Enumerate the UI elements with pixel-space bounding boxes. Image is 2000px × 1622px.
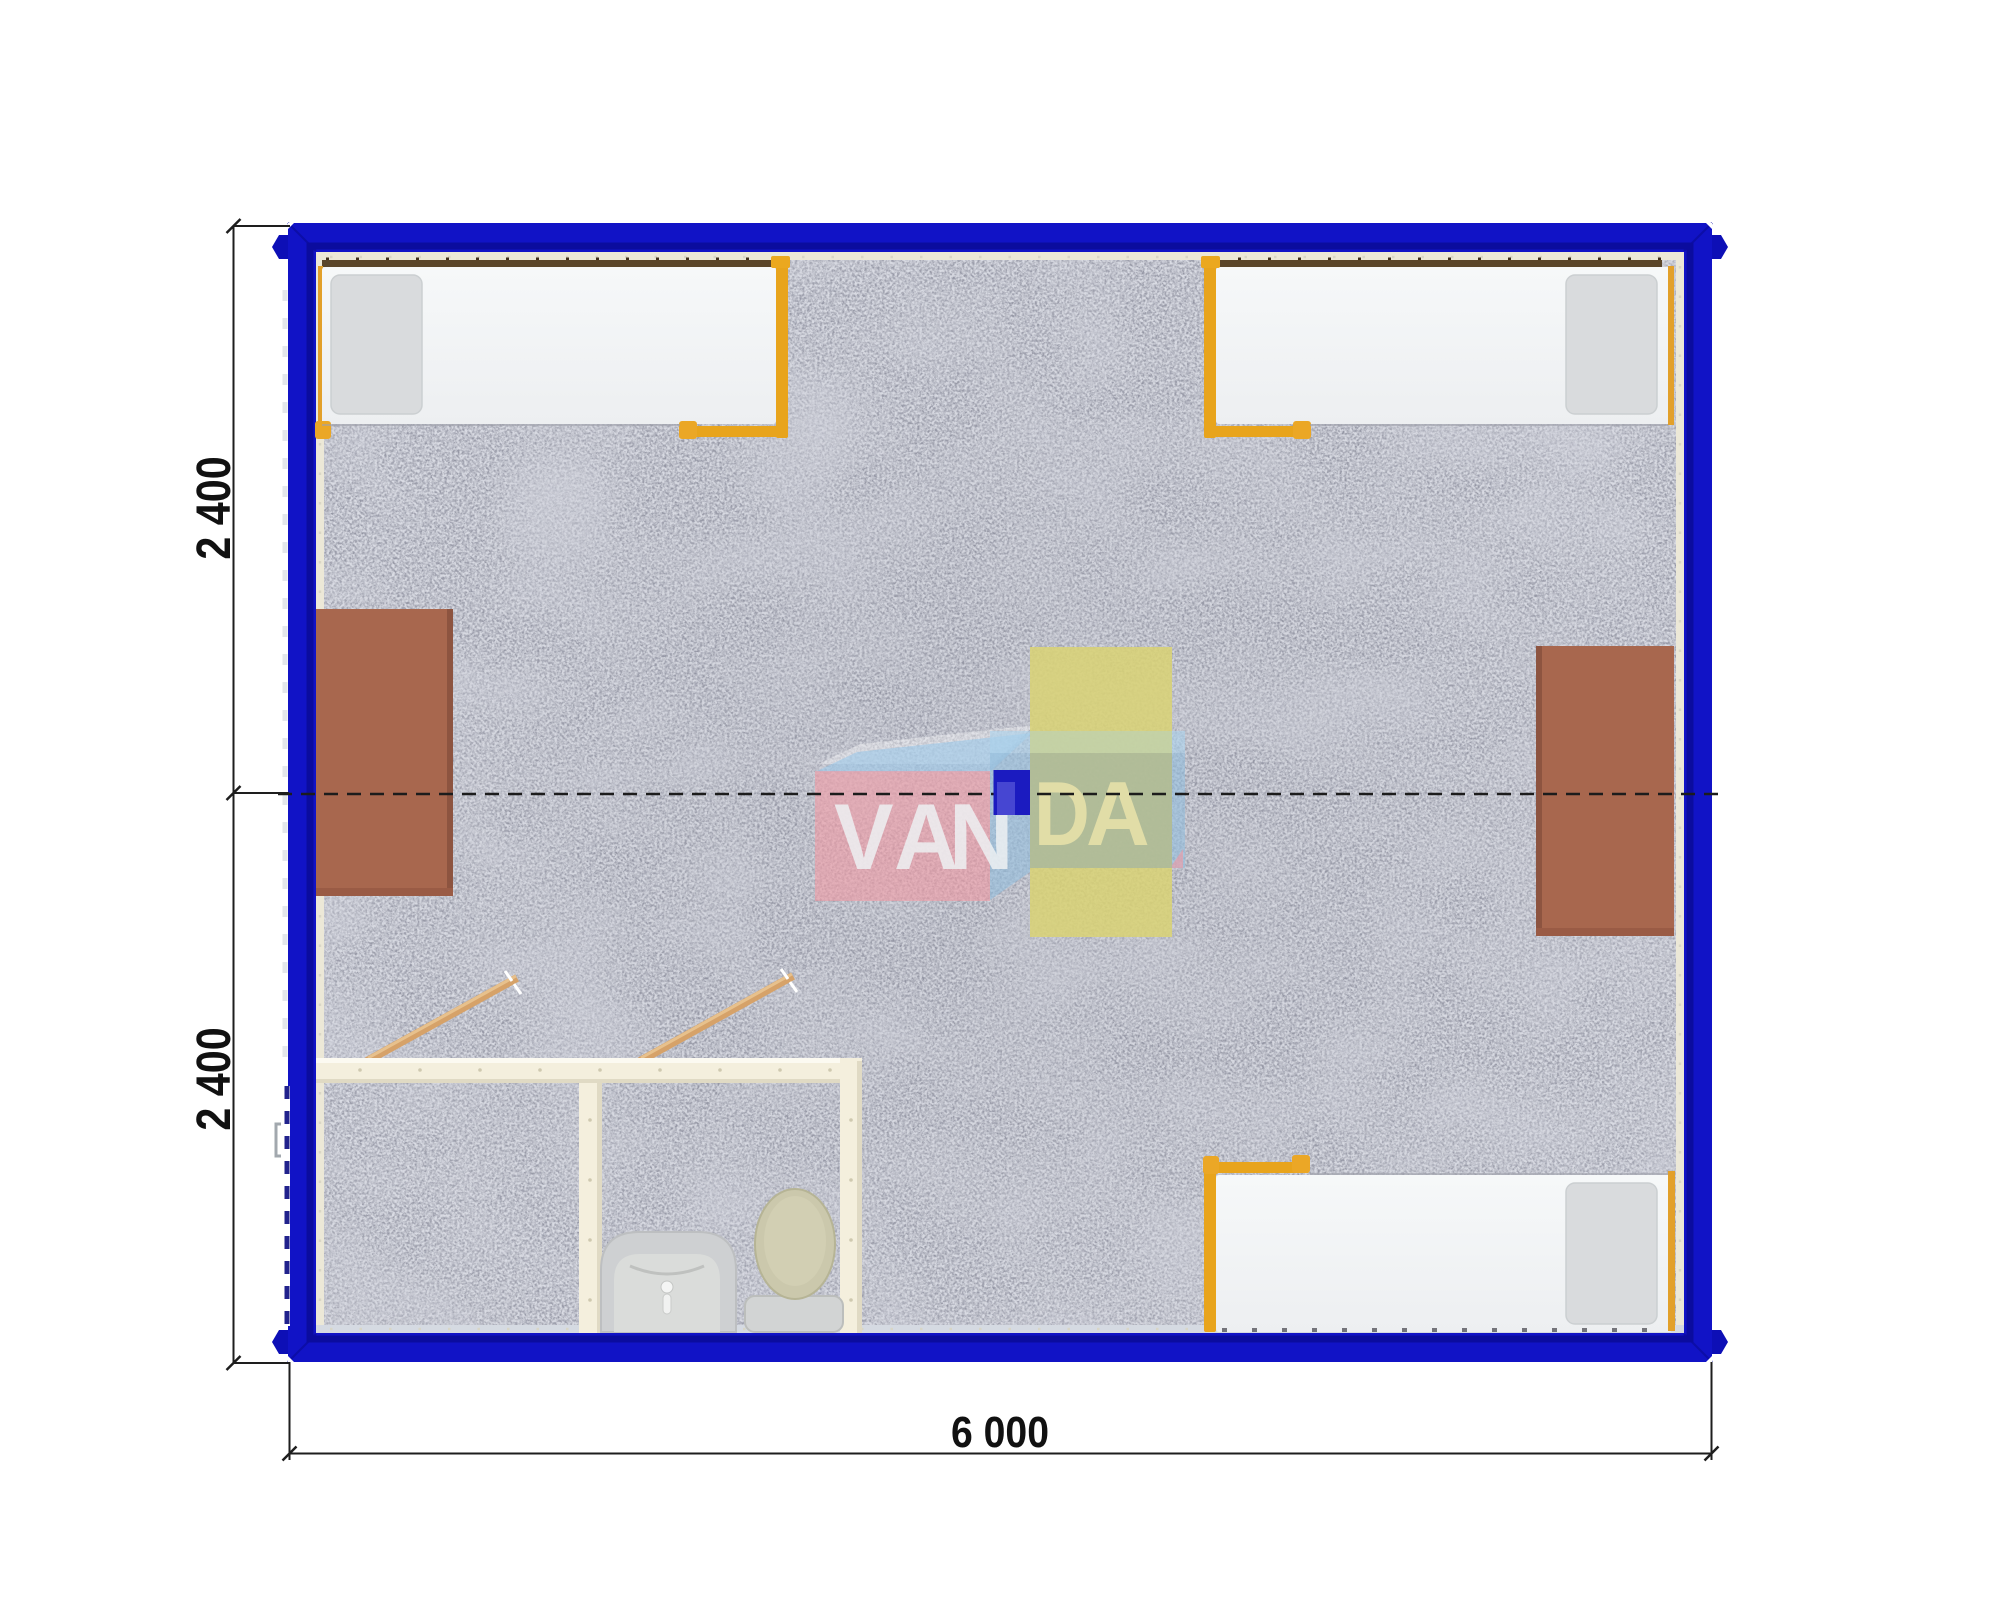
- svg-text:6 000: 6 000: [951, 1407, 1049, 1457]
- svg-text:V: V: [834, 785, 894, 890]
- svg-text:2 400: 2 400: [187, 456, 241, 559]
- svg-text:A: A: [1086, 763, 1150, 865]
- svg-text:2 400: 2 400: [187, 1027, 241, 1130]
- svg-text:D: D: [1034, 763, 1090, 864]
